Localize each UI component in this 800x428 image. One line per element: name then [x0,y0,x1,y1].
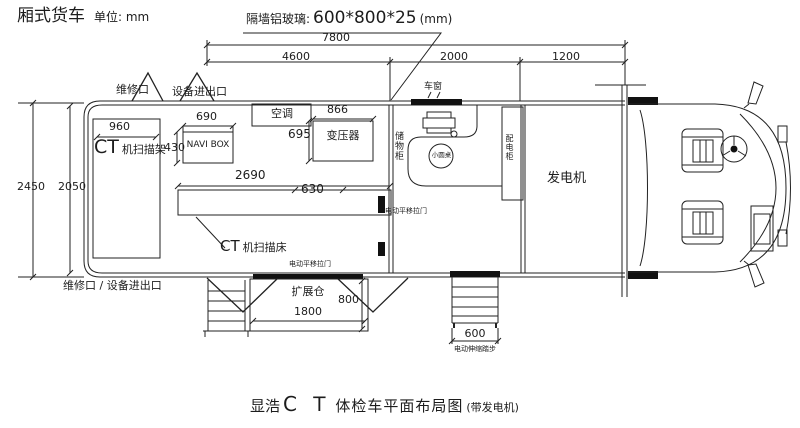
ct-bed-text: 机扫描床 [243,242,287,253]
ct-gantry-text: 机扫描架 [122,144,166,155]
expansion-door-label: 电动平移拉门 [289,261,331,268]
air-conditioner-label: 空调 [253,108,311,119]
generator-label: 发电机 [547,172,586,185]
bottom-ports-label: 维修口 / 设备进出口 [63,280,162,291]
ct-bed-prefix: CT [220,239,240,254]
dim-transformer-width: 866 [327,104,348,115]
dim-bed-width: 630 [301,183,324,195]
dim-expansion-length: 1800 [252,306,364,317]
dim-inner-width: 2050 [58,181,86,192]
top-dimension-lines [204,33,628,101]
dim-gantry-width: 960 [109,121,130,132]
partition-note-value: 600*800*25 [313,10,417,27]
title-ct: C Ｔ [283,394,332,414]
dim-cabin-length: 4600 [282,51,310,62]
ct-gantry-prefix: CT [94,138,119,157]
dim-steps-width: 600 [452,328,498,339]
partition-note-label: 隔墙铝玻璃: [246,13,310,25]
truck-body-outline [84,73,646,312]
drawing-header: 厢式货车 单位: mm [17,8,149,25]
ct-bed-label: CT 机扫描床 [220,239,287,254]
middle-room-interior [378,105,523,256]
telescopic-steps-label: 电动伸缩踏步 [454,346,496,353]
ct-vehicle-floor-plan: 厢式货车 单位: mm 隔墙铝玻璃: 600*800*25 (mm) 7800 … [0,0,800,428]
dim-transformer-depth: 695 [288,128,311,140]
unit-note: 单位: mm [94,11,149,23]
partition-note-unit: (mm) [420,13,453,25]
roof-hatch-maintenance-label: 维修口 [116,84,149,95]
storage-cabinet-label: 储物柜 [393,131,402,161]
round-table-label: 小圆桌 [430,152,453,159]
power-cabinet-label: 配电柜 [505,134,513,161]
title-main: 体检车平面布局图 [335,399,463,414]
vehicle-type-label: 厢式货车 [17,8,85,25]
dim-navi-width: 690 [196,111,217,122]
navi-box-label: NAVI BOX [184,141,232,150]
roof-hatch-equipment-label: 设备进出口 [172,86,227,97]
drawing-title: 显浩 C Ｔ 体检车平面布局图 (带发电机) [250,394,519,414]
dim-overall-width: 2450 [17,181,45,192]
title-suffix: (带发电机) [466,402,519,413]
dim-expansion-depth: 800 [338,294,359,305]
transformer-label: 变压器 [314,130,372,141]
left-steps [203,280,250,337]
truck-cab-drawing [628,82,791,287]
dim-gen-length: 1200 [552,51,580,62]
dim-bed-length: 2690 [235,169,266,181]
ct-gantry-label: CT 机扫描架 [94,138,166,157]
title-brand: 显浩 [250,399,280,414]
partition-glass-note: 隔墙铝玻璃: 600*800*25 (mm) [246,10,452,27]
dim-navi-depth: 430 [164,142,185,153]
window-label: 车窗 [424,83,442,92]
dim-total-length: 7800 [322,32,350,43]
dim-mid-length: 2000 [440,51,468,62]
sliding-door-label: 电动平移拉门 [385,208,427,215]
